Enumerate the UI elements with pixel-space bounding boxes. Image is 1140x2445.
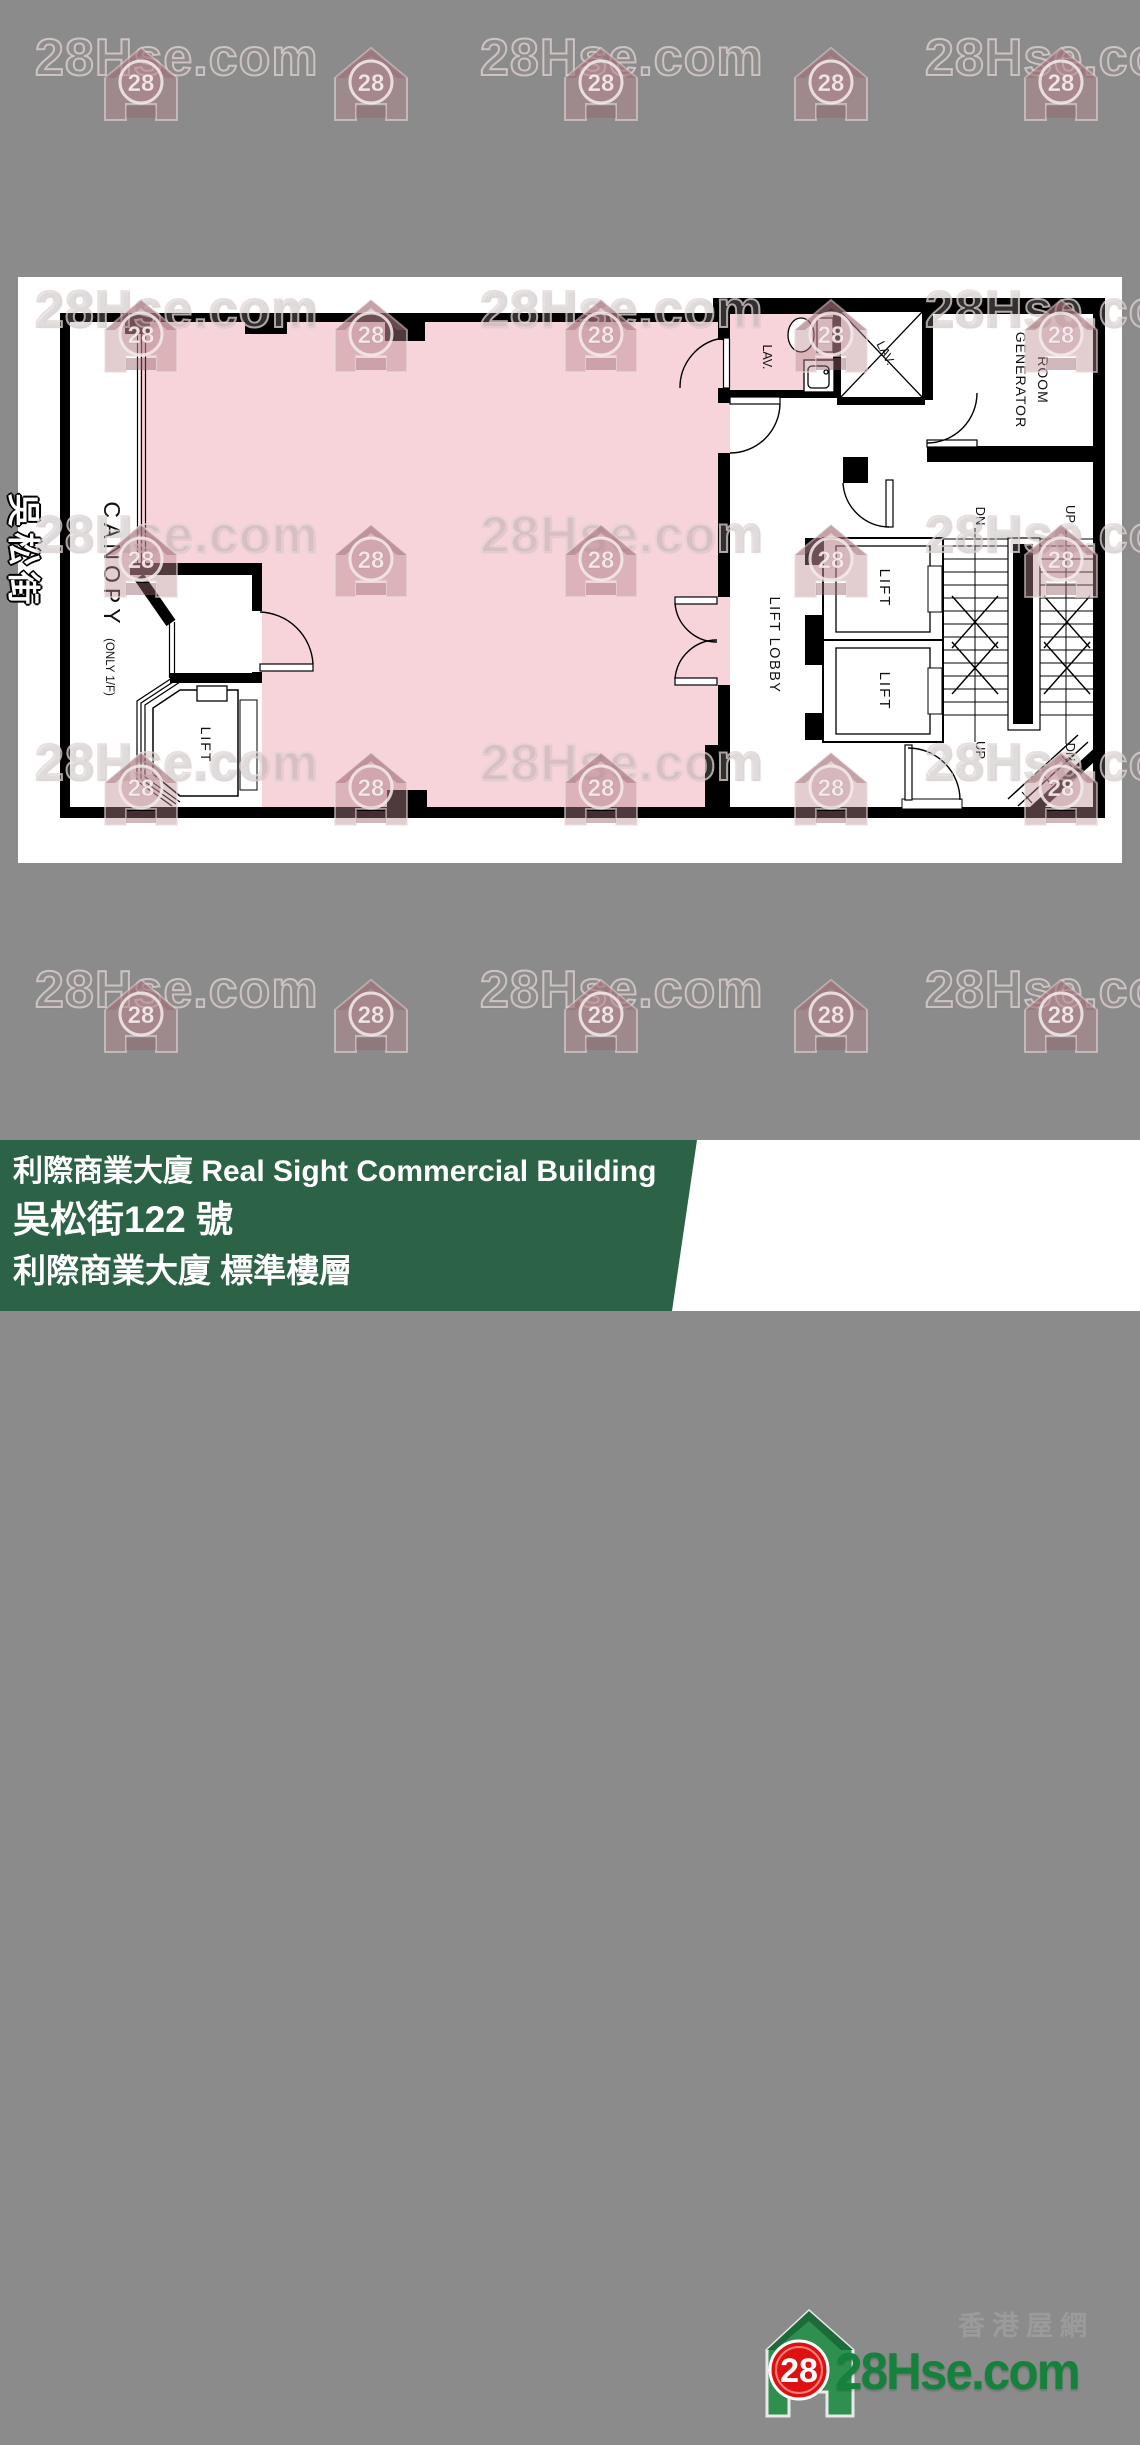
generator-room-label-2: ROOM bbox=[1035, 356, 1051, 404]
lav-label-1: LAV. bbox=[760, 344, 774, 369]
building-name: 利際商業大廈 Real Sight Commercial Building bbox=[13, 1150, 1140, 1194]
generator-room-label-1: GENERATOR bbox=[1013, 332, 1029, 428]
watermark-text: 28Hse.com bbox=[480, 960, 764, 1020]
svg-text:28: 28 bbox=[1048, 70, 1075, 97]
stair-up-label-top: UP bbox=[1063, 505, 1078, 523]
logo-site-name: 28Hse.com bbox=[835, 2342, 1079, 2402]
watermark-house-icon: 28 bbox=[103, 46, 179, 124]
watermark-house-icon: 28 bbox=[793, 46, 869, 124]
street-name-label: 吳松街 bbox=[2, 494, 50, 611]
toilet-tank bbox=[817, 318, 833, 352]
svg-text:28: 28 bbox=[818, 70, 845, 97]
watermark-house-icon: 28 bbox=[793, 978, 869, 1056]
watermark-house-icon: 28 bbox=[1023, 46, 1099, 124]
wall-step bbox=[139, 577, 171, 623]
building-title-panel: 利際商業大廈 Real Sight Commercial Building 吳松… bbox=[0, 1140, 1140, 1311]
svg-text:28: 28 bbox=[128, 1002, 155, 1029]
watermark-house-icon: 28 bbox=[1023, 978, 1099, 1056]
sink-tap bbox=[824, 370, 828, 374]
floorplan-drawing: CANOPY (ONLY 1/F) LIFT LIFT LIFT LIFT LO… bbox=[18, 277, 1122, 863]
sink-basin bbox=[808, 366, 829, 388]
corner-chute bbox=[1008, 735, 1102, 812]
staircase bbox=[943, 528, 1093, 744]
svg-text:28: 28 bbox=[358, 70, 385, 97]
watermark-house-icon: 28 bbox=[563, 978, 639, 1056]
footer-bar: 利際商業大廈 Real Sight Commercial Building 吳松… bbox=[0, 1140, 1140, 1311]
watermark-house-icon: 28 bbox=[103, 978, 179, 1056]
svg-text:28: 28 bbox=[818, 1002, 845, 1029]
page: { "watermark": { "text": "28Hse.com", "b… bbox=[0, 0, 1140, 1311]
svg-text:28: 28 bbox=[588, 70, 615, 97]
canopy-label: CANOPY bbox=[99, 501, 125, 628]
svg-text:28: 28 bbox=[358, 1002, 385, 1029]
lift-label-2: LIFT bbox=[876, 569, 893, 608]
watermark-house-icon: 28 bbox=[563, 46, 639, 124]
site-logo[interactable]: 28 香港屋網 28Hse.com bbox=[755, 2290, 1135, 2445]
lift-label-1: LIFT bbox=[198, 727, 214, 764]
floorplan-caption: 利際商業大廈 標準樓層 bbox=[13, 1246, 1140, 1296]
stair-dn-label-bottom: DN bbox=[1063, 743, 1078, 762]
logo-badge-number: 28 bbox=[780, 2352, 818, 2390]
building-address: 吳松街122 號 bbox=[13, 1194, 1140, 1246]
canopy-note-label: (ONLY 1/F) bbox=[103, 638, 115, 696]
stair-up-label-bottom: UP bbox=[973, 741, 988, 759]
lift-lobby-label: LIFT LOBBY bbox=[766, 597, 782, 694]
toilet-bowl bbox=[788, 318, 814, 352]
watermark-house-icon: 28 bbox=[333, 978, 409, 1056]
svg-text:28: 28 bbox=[588, 1002, 615, 1029]
floorplan-sheet: CANOPY (ONLY 1/F) LIFT LIFT LIFT LIFT LO… bbox=[18, 277, 1122, 863]
lift-label-3: LIFT bbox=[876, 672, 893, 711]
watermark-text: 28Hse.com bbox=[35, 28, 319, 88]
svg-text:28: 28 bbox=[1048, 1002, 1075, 1029]
watermark-house-icon: 28 bbox=[333, 46, 409, 124]
svg-text:28: 28 bbox=[128, 70, 155, 97]
watermark-text: 28Hse.com bbox=[35, 960, 319, 1020]
stair-dn-label-top: DN bbox=[973, 507, 988, 526]
watermark-text: 28Hse.com bbox=[925, 960, 1140, 1020]
watermark-text: 28Hse.com bbox=[480, 28, 764, 88]
watermark-text: 28Hse.com bbox=[925, 28, 1140, 88]
logo-tagline: 香港屋網 bbox=[958, 2304, 1094, 2343]
